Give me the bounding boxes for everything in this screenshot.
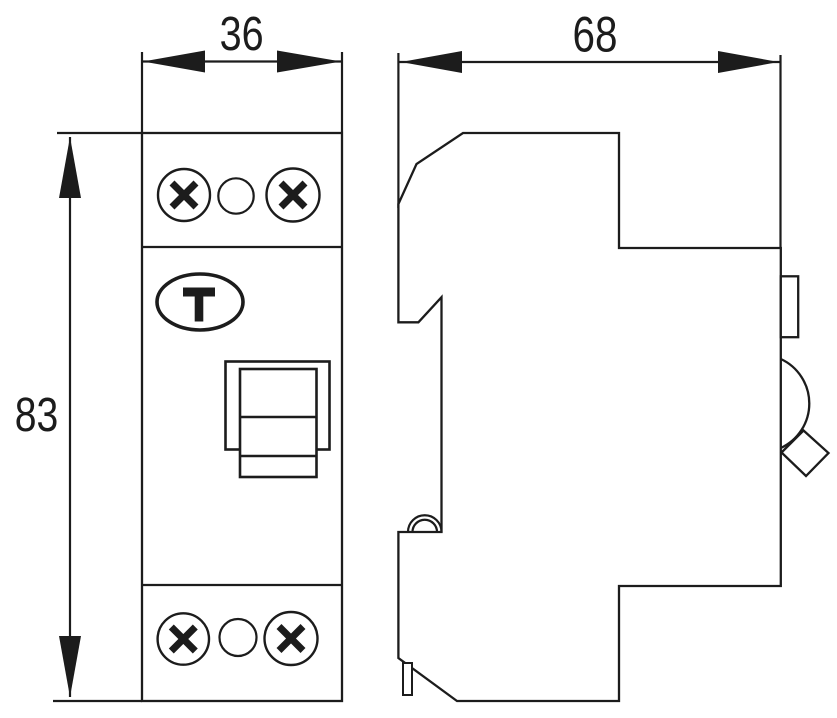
svg-text:36: 36 [220, 8, 264, 61]
svg-text:83: 83 [15, 389, 59, 442]
svg-text:68: 68 [573, 7, 618, 63]
